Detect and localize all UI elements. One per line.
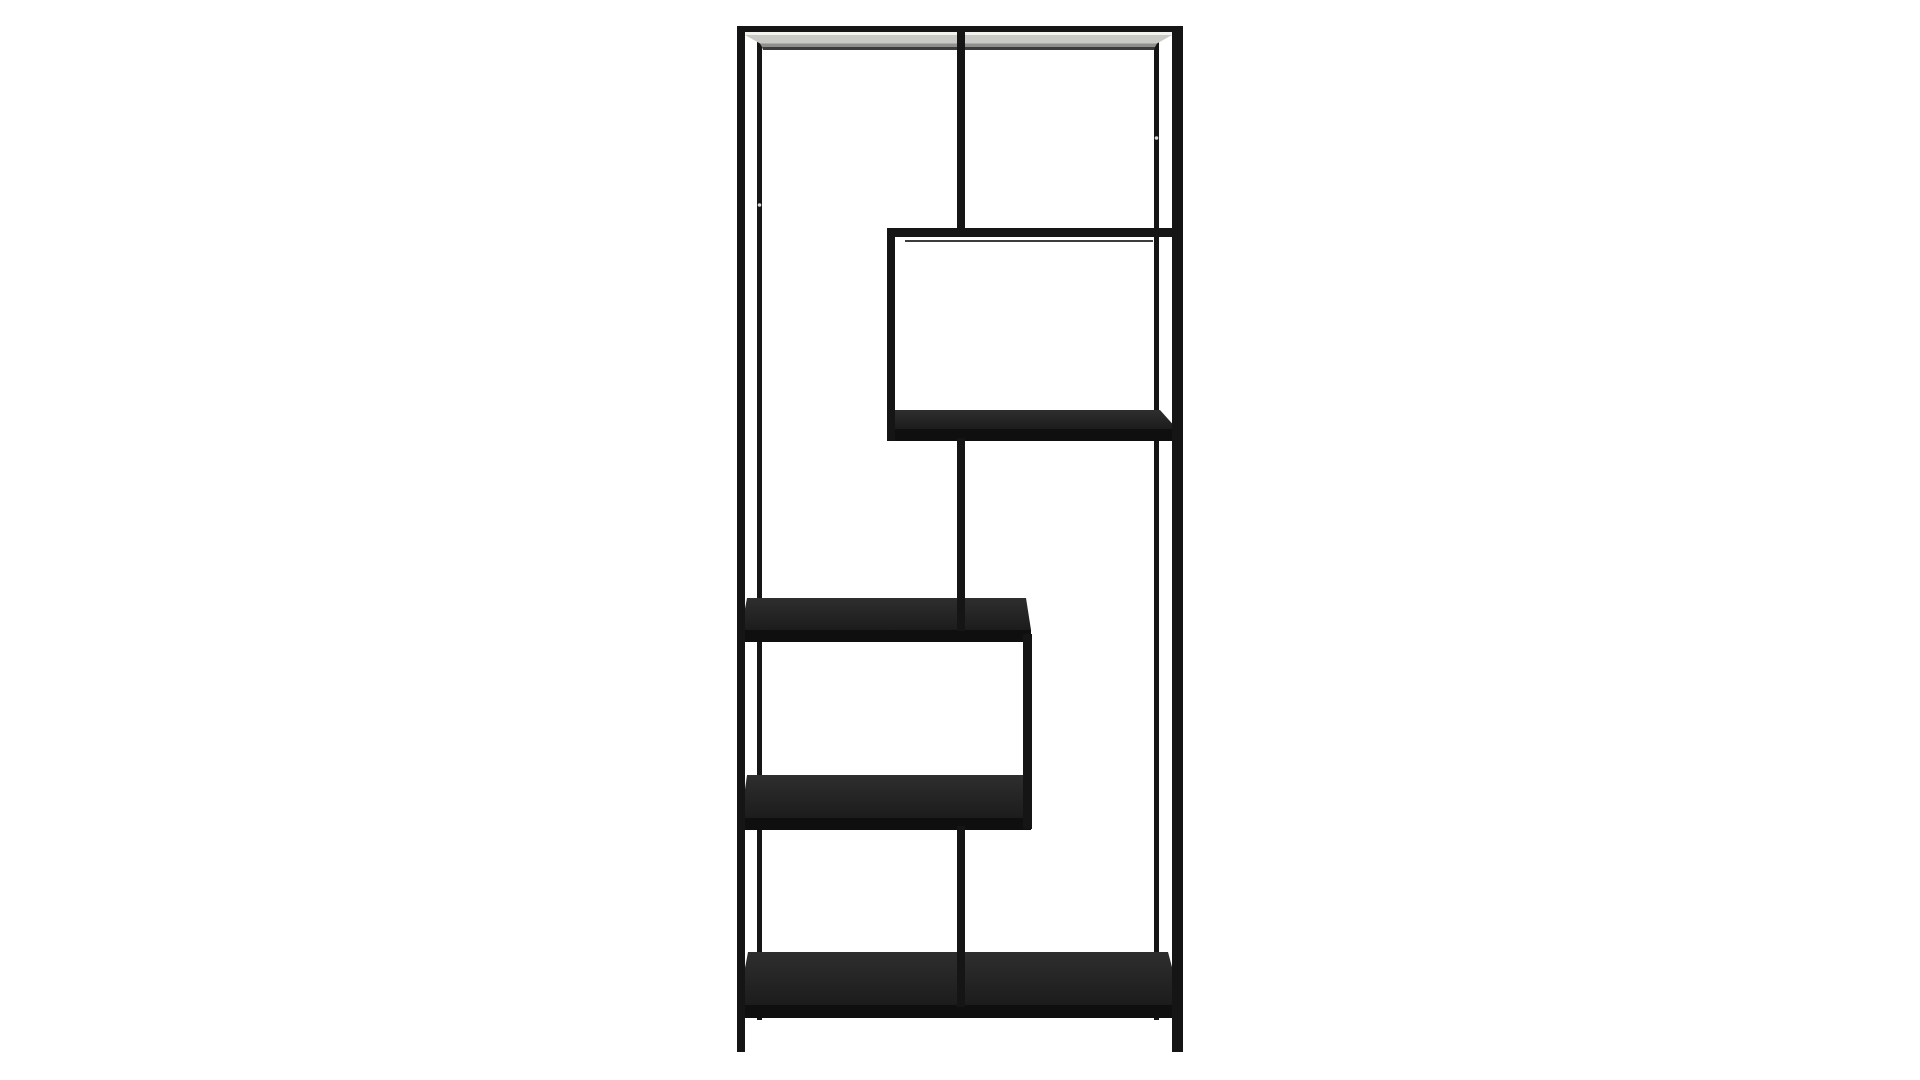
upper-right-shelf-rail [887, 228, 1177, 237]
product-photo-svg [0, 0, 1920, 1080]
page-canvas [0, 0, 1920, 1080]
lower-left-shelf-front-edge [741, 818, 1031, 830]
lower-box-right-post [1023, 634, 1032, 829]
upper-right-shelf-front-edge [887, 429, 1177, 441]
back-right-leg [1154, 40, 1159, 1020]
front-left-leg [737, 26, 745, 1052]
upper-right-shelf-top [887, 410, 1177, 429]
middle-left-shelf-top [741, 598, 1031, 630]
screw-hole-right-leg [1155, 136, 1159, 140]
center-divider-lower [957, 826, 965, 1007]
front-right-leg [1172, 26, 1183, 1052]
screw-hole-left-leg [758, 203, 762, 207]
center-divider-middle [957, 438, 965, 631]
middle-left-shelf-front-edge [741, 630, 1031, 642]
center-divider-upper [957, 31, 965, 232]
lower-left-shelf-top [741, 775, 1031, 818]
back-left-leg [757, 40, 762, 1020]
upper-box-left-post [887, 228, 895, 441]
upper-right-shelf-back-edge [905, 240, 1153, 242]
